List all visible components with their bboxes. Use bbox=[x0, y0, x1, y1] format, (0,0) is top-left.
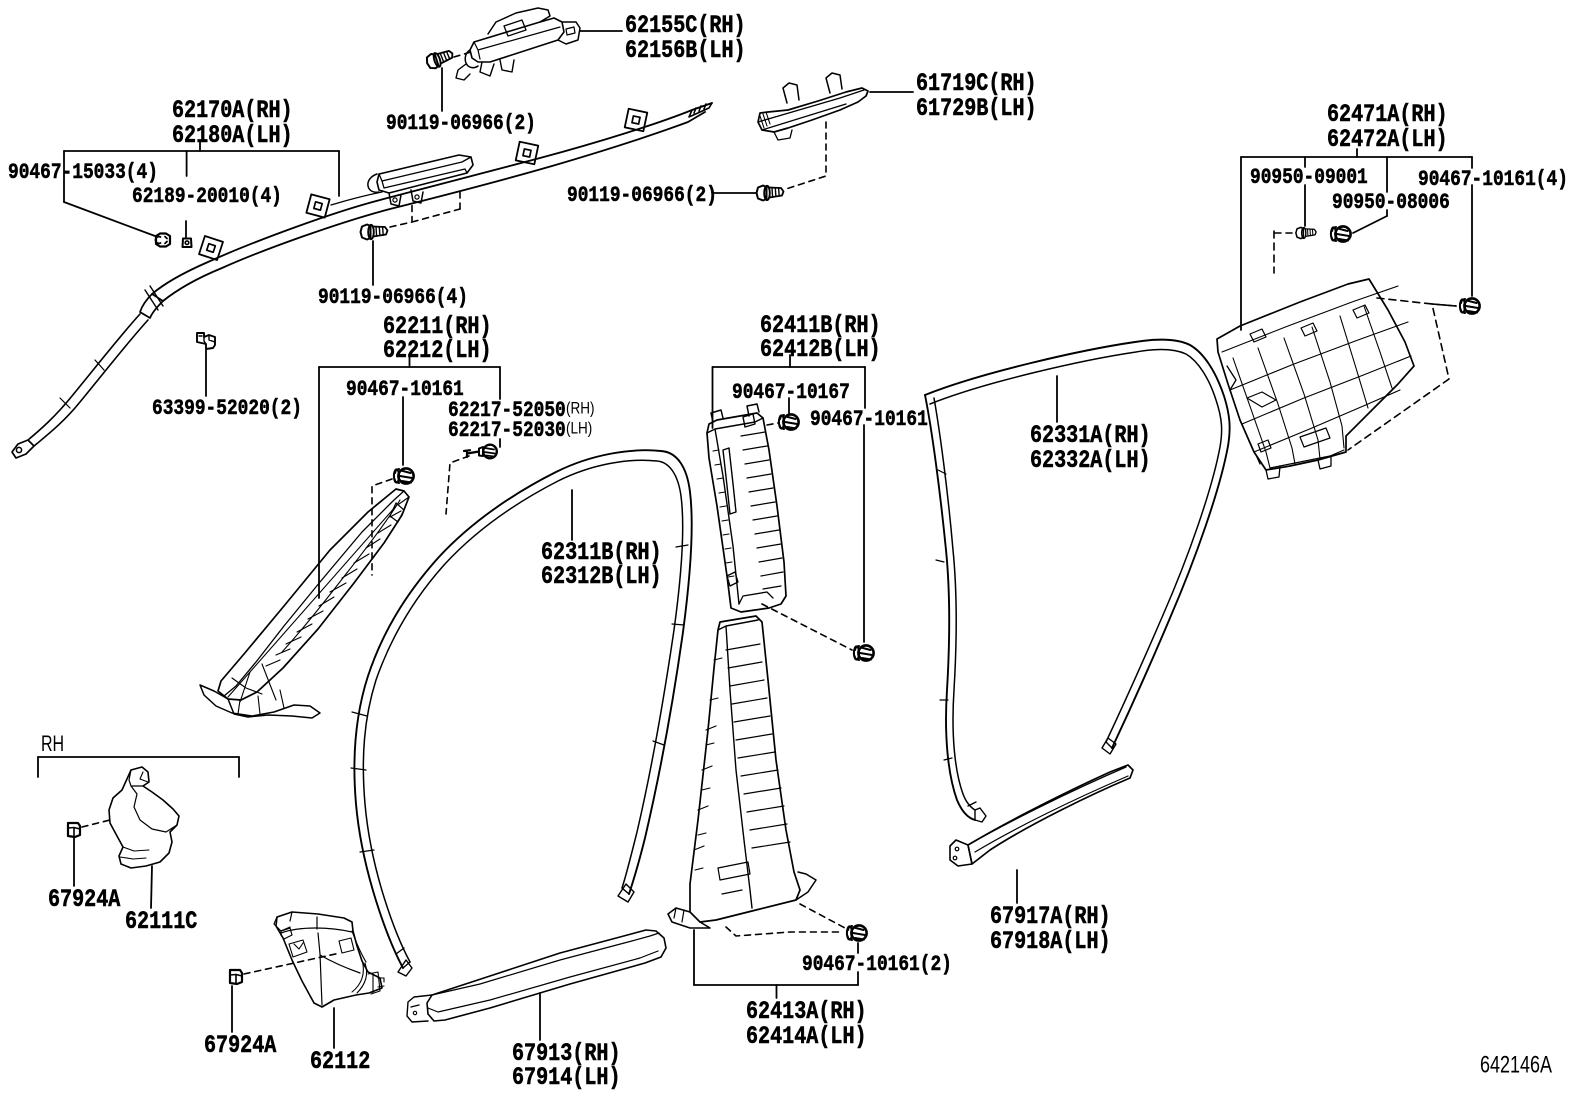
svg-text:642146A: 642146A bbox=[1480, 1052, 1552, 1078]
svg-text:90467-15033(4): 90467-15033(4) bbox=[8, 160, 158, 185]
svg-text:67918A(LH): 67918A(LH) bbox=[990, 927, 1111, 956]
svg-text:63399-52020(2): 63399-52020(2) bbox=[152, 396, 302, 421]
svg-text:90467-10161(4): 90467-10161(4) bbox=[1418, 167, 1568, 192]
svg-text:90950-09001: 90950-09001 bbox=[1250, 165, 1368, 190]
svg-text:RH: RH bbox=[41, 733, 64, 757]
svg-text:62217-52030: 62217-52030 bbox=[448, 418, 566, 443]
svg-text:90467-10161: 90467-10161 bbox=[810, 407, 928, 432]
svg-text:62212(LH): 62212(LH) bbox=[383, 336, 492, 365]
svg-text:90119-06966(2): 90119-06966(2) bbox=[386, 111, 536, 136]
svg-text:90950-08006: 90950-08006 bbox=[1332, 190, 1450, 215]
svg-text:(LH): (LH) bbox=[566, 419, 592, 438]
svg-text:62312B(LH): 62312B(LH) bbox=[541, 562, 662, 591]
svg-text:90467-10161(2): 90467-10161(2) bbox=[802, 952, 952, 977]
svg-text:62111C: 62111C bbox=[125, 907, 198, 936]
svg-text:(RH): (RH) bbox=[566, 399, 594, 418]
svg-text:62180A(LH): 62180A(LH) bbox=[172, 121, 293, 150]
svg-text:90119-06966(2): 90119-06966(2) bbox=[567, 183, 717, 208]
svg-text:62472A(LH): 62472A(LH) bbox=[1327, 125, 1448, 154]
svg-text:62332A(LH): 62332A(LH) bbox=[1030, 446, 1151, 475]
svg-text:90467-10161: 90467-10161 bbox=[346, 377, 464, 402]
svg-text:62112: 62112 bbox=[310, 1047, 370, 1076]
svg-text:90119-06966(4): 90119-06966(4) bbox=[318, 285, 468, 310]
svg-text:62412B(LH): 62412B(LH) bbox=[760, 335, 881, 364]
svg-text:67924A: 67924A bbox=[48, 885, 121, 914]
svg-text:67924A: 67924A bbox=[204, 1031, 277, 1060]
svg-text:90467-10167: 90467-10167 bbox=[732, 380, 850, 405]
svg-text:61729B(LH): 61729B(LH) bbox=[916, 94, 1037, 123]
svg-text:62189-20010(4): 62189-20010(4) bbox=[132, 184, 282, 209]
svg-text:67914(LH): 67914(LH) bbox=[512, 1063, 621, 1092]
svg-text:62414A(LH): 62414A(LH) bbox=[746, 1022, 867, 1051]
svg-text:62156B(LH): 62156B(LH) bbox=[625, 36, 746, 65]
